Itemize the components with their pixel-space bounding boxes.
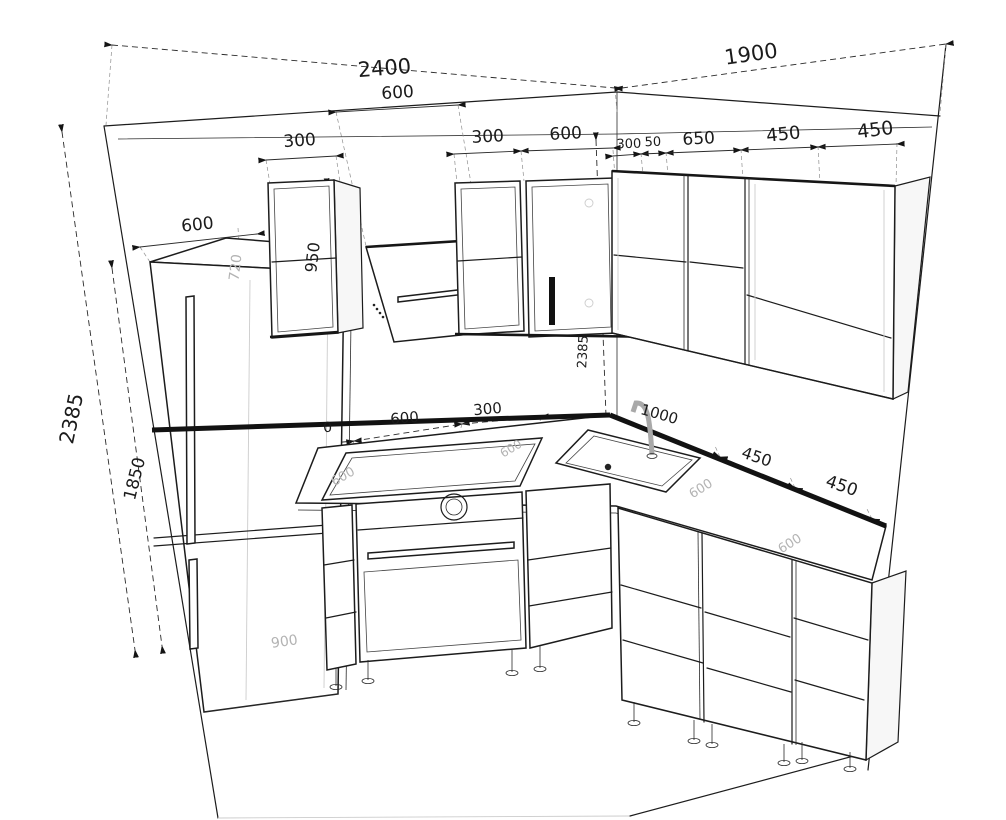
- dim-upper-600: 600: [549, 123, 582, 145]
- dim-upper-450-b: 450: [856, 117, 895, 143]
- upper-cabinet-600-door: [526, 178, 617, 337]
- dim-upper-450-a: 450: [765, 122, 801, 146]
- base-cabinets-left: [322, 484, 612, 690]
- fridge-handle-upper: [186, 296, 195, 544]
- dim-hood-height-720: 720: [226, 253, 245, 281]
- dim-counter-partial: 0: [323, 420, 333, 437]
- oven: [356, 492, 526, 662]
- dim-wall-height-left: 2385: [54, 391, 88, 446]
- fridge-handle-lower: [189, 559, 198, 649]
- dim-wall-height-corner: 2385: [575, 335, 592, 369]
- sink-drain: [605, 464, 611, 470]
- dim-right-wall-total: 1900: [723, 38, 779, 69]
- cabinet-door-handle: [549, 277, 555, 325]
- dim-hood-span: 600: [381, 82, 415, 104]
- dim-fridge-width: 600: [180, 213, 214, 236]
- dim-left-wall-total: 2400: [357, 54, 412, 82]
- dim-counter-300: 300: [473, 399, 503, 419]
- dim-upper-300-mid: 300: [471, 126, 504, 148]
- upper-cabinets-left: [268, 178, 662, 342]
- dim-upper-height-950: 950: [301, 241, 324, 274]
- kitchen-wireframe-drawing: 2400 1900 600 300 300 600 300 50 650 450…: [0, 0, 1006, 820]
- upper-cabinets-right: [612, 171, 930, 399]
- dim-counter-600: 600: [390, 408, 420, 428]
- dim-upper-300-left: 300: [283, 130, 317, 152]
- dim-upper-650: 650: [682, 128, 715, 150]
- kitchen-wireframe-page: 2400 1900 600 300 300 600 300 50 650 450…: [0, 0, 1006, 820]
- dim-fridge-height: 1850: [120, 455, 150, 502]
- dim-upper-300-corner: 300: [616, 137, 641, 153]
- dim-counter-450-b: 450: [823, 472, 860, 501]
- dim-counter-1000: 1000: [639, 400, 681, 428]
- dim-upper-50-filler: 50: [644, 135, 661, 151]
